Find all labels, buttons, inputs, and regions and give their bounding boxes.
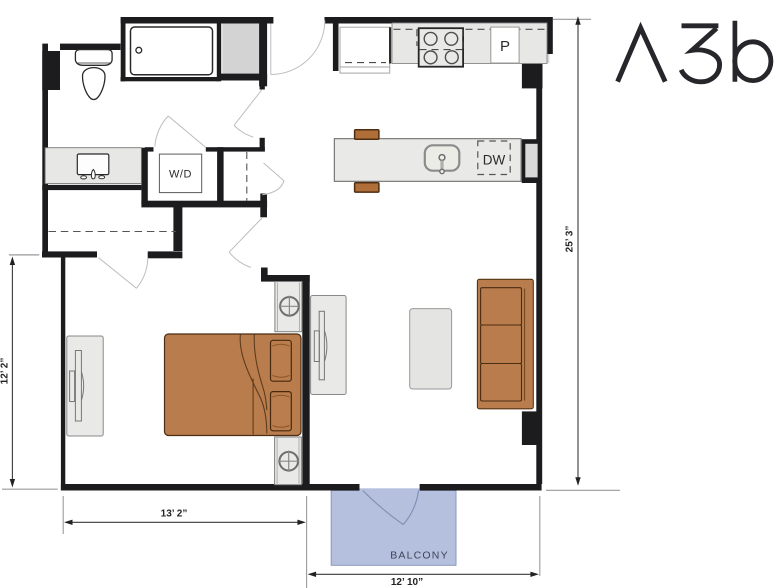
svg-text:DW: DW (483, 153, 506, 168)
svg-text:25’ 3”: 25’ 3” (565, 226, 576, 253)
svg-text:BALCONY: BALCONY (390, 550, 449, 562)
svg-text:12’ 10”: 12’ 10” (391, 577, 423, 588)
svg-text:P: P (500, 38, 510, 55)
svg-text:W/D: W/D (169, 169, 192, 181)
svg-text:12’ 2”: 12’ 2” (0, 358, 11, 385)
svg-text:13’ 2”: 13’ 2” (161, 509, 188, 520)
